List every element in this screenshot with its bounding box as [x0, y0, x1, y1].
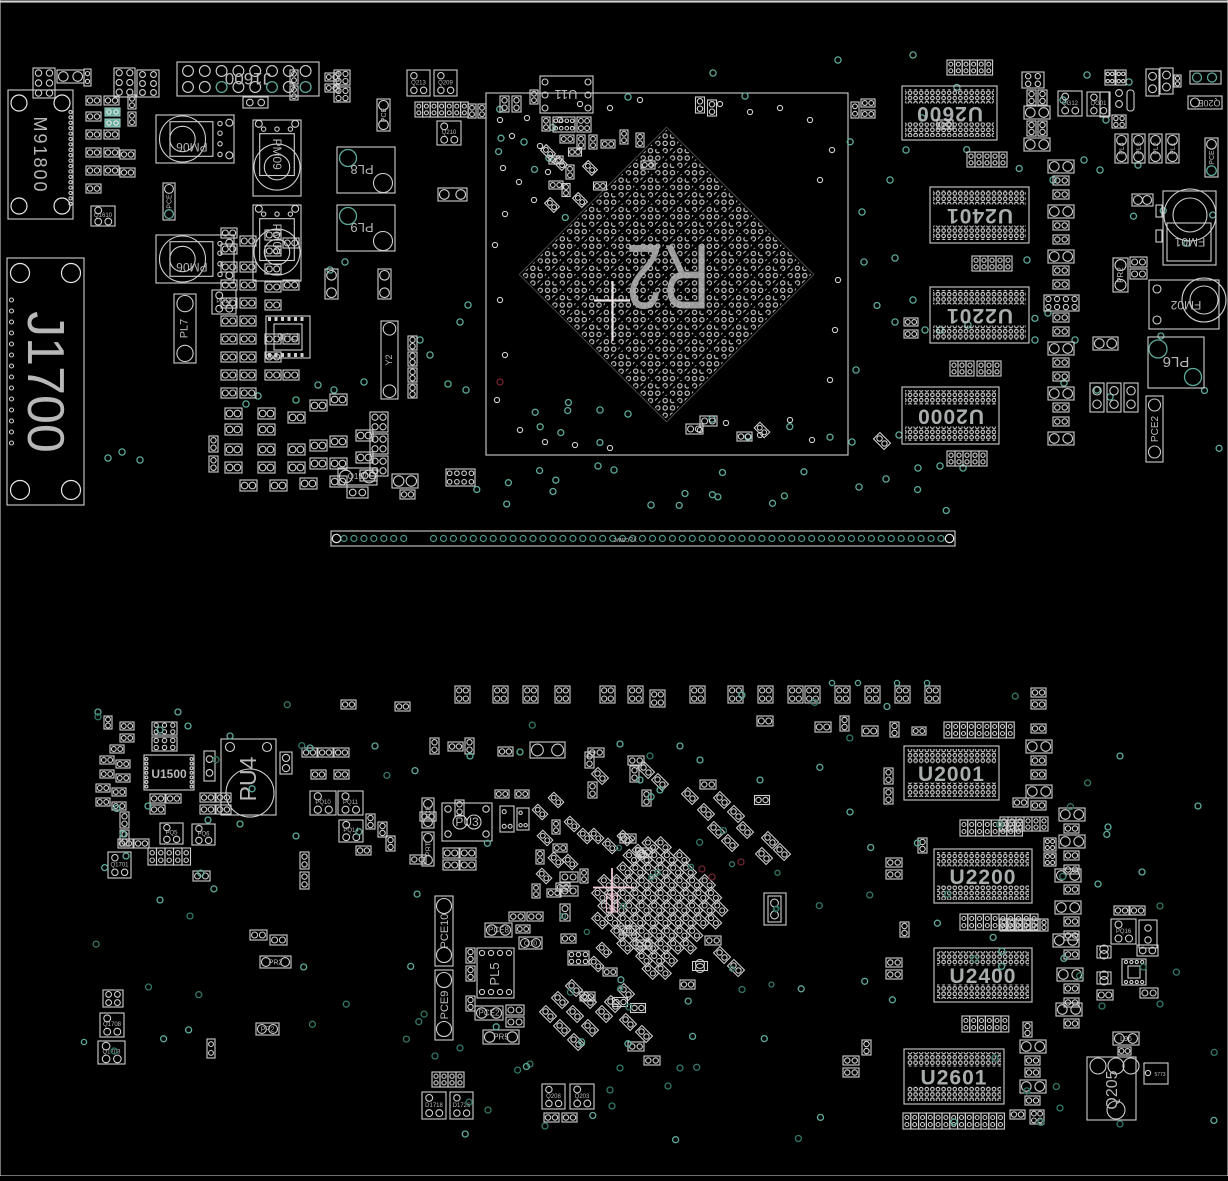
svg-text:FM02: FM02 — [1170, 298, 1201, 312]
svg-text:J1700: J1700 — [16, 311, 74, 453]
svg-text:Q208: Q208 — [546, 1094, 561, 1100]
svg-text:PQ6: PQ6 — [197, 832, 210, 838]
svg-text:QG01: QG01 — [1090, 101, 1107, 107]
svg-text:PCE10: PCE10 — [439, 914, 451, 949]
svg-text:PL5: PL5 — [487, 962, 502, 985]
svg-text:PL2: PL2 — [1153, 142, 1160, 155]
svg-text:PR2: PR2 — [261, 1027, 275, 1034]
svg-text:Q1610: Q1610 — [94, 213, 113, 219]
svg-text:PL7: PL7 — [179, 319, 191, 339]
svg-text:U2400: U2400 — [950, 965, 1017, 988]
svg-text:D1718: D1718 — [425, 1103, 443, 1109]
svg-text:FM01: FM01 — [1174, 235, 1205, 249]
svg-text:Q20E: Q20E — [1197, 98, 1220, 108]
svg-text:Q157: Q157 — [348, 472, 368, 481]
svg-text:5773: 5773 — [1154, 1072, 1165, 1078]
svg-text:PL4: PL4 — [1119, 142, 1126, 155]
svg-text:Q1701: Q1701 — [110, 862, 129, 868]
svg-text:PR2: PR2 — [1116, 267, 1125, 283]
svg-text:PU6: PU6 — [277, 330, 298, 342]
svg-text:PQ10: PQ10 — [315, 800, 331, 806]
svg-text:U2201: U2201 — [946, 304, 1013, 327]
svg-text:Q10: Q10 — [524, 941, 537, 948]
svg-text:U2200: U2200 — [950, 866, 1017, 889]
svg-text:PRT: PRT — [426, 841, 433, 856]
svg-text:PCE2: PCE2 — [1150, 416, 1161, 443]
svg-text:Y2: Y2 — [384, 354, 394, 365]
svg-text:PCE8: PCE8 — [488, 926, 509, 935]
svg-text:PR2: PR2 — [269, 960, 283, 967]
svg-text:PL3: PL3 — [1136, 142, 1143, 155]
svg-text:U2000: U2000 — [917, 405, 984, 428]
svg-text:U2601: U2601 — [921, 1067, 988, 1090]
svg-text:PL8: PL8 — [350, 162, 373, 177]
svg-text:PM06: PM06 — [176, 140, 208, 154]
svg-text:U1500: U1500 — [151, 767, 187, 781]
svg-text:PQ16: PQ16 — [1116, 929, 1132, 935]
svg-text:R2: R2 — [626, 225, 710, 327]
svg-text:PL6: PL6 — [1163, 353, 1190, 370]
svg-text:U11: U11 — [555, 87, 578, 102]
svg-text:PM09: PM09 — [270, 139, 284, 171]
svg-text:PCE: PCE — [1209, 150, 1216, 165]
svg-text:QG12: QG12 — [1062, 101, 1079, 107]
svg-text:PCE9: PCE9 — [439, 991, 451, 1020]
svg-text:PQ11: PQ11 — [343, 800, 359, 806]
svg-text:PCE2: PCE2 — [479, 1009, 500, 1018]
svg-text:PL9: PL9 — [350, 220, 373, 235]
svg-text:Q213: Q213 — [411, 80, 426, 86]
svg-text:Q1708: Q1708 — [103, 1022, 122, 1028]
svg-text:PQ5: PQ5 — [165, 831, 178, 837]
svg-text:PR5: PR5 — [493, 1033, 509, 1042]
svg-text:PU3: PU3 — [455, 815, 479, 829]
svg-text:PU4: PU4 — [235, 756, 261, 801]
svg-text:PCE: PCE — [381, 107, 388, 122]
svg-text:U2001: U2001 — [918, 763, 985, 786]
svg-text:Q209: Q209 — [438, 80, 453, 86]
svg-text:Q210: Q210 — [442, 130, 457, 136]
svg-text:PM06: PM06 — [176, 260, 208, 274]
svg-text:M91800: M91800 — [30, 116, 50, 193]
svg-text:Q205: Q205 — [1104, 1070, 1121, 1109]
svg-text:PL1: PL1 — [1170, 142, 1177, 155]
svg-text:ɔʍɐɔ?ʎ: ɔʍɐɔ?ʎ — [613, 537, 637, 544]
svg-text:Q203: Q203 — [575, 1094, 590, 1100]
svg-text:J1600: J1600 — [225, 69, 271, 88]
svg-text:PQ18: PQ18 — [216, 299, 232, 305]
svg-text:L96: L96 — [1120, 1036, 1132, 1043]
svg-text:D1726: D1726 — [453, 1103, 471, 1109]
svg-text:PCE: PCE — [167, 194, 174, 209]
svg-text:U2401: U2401 — [946, 204, 1013, 227]
